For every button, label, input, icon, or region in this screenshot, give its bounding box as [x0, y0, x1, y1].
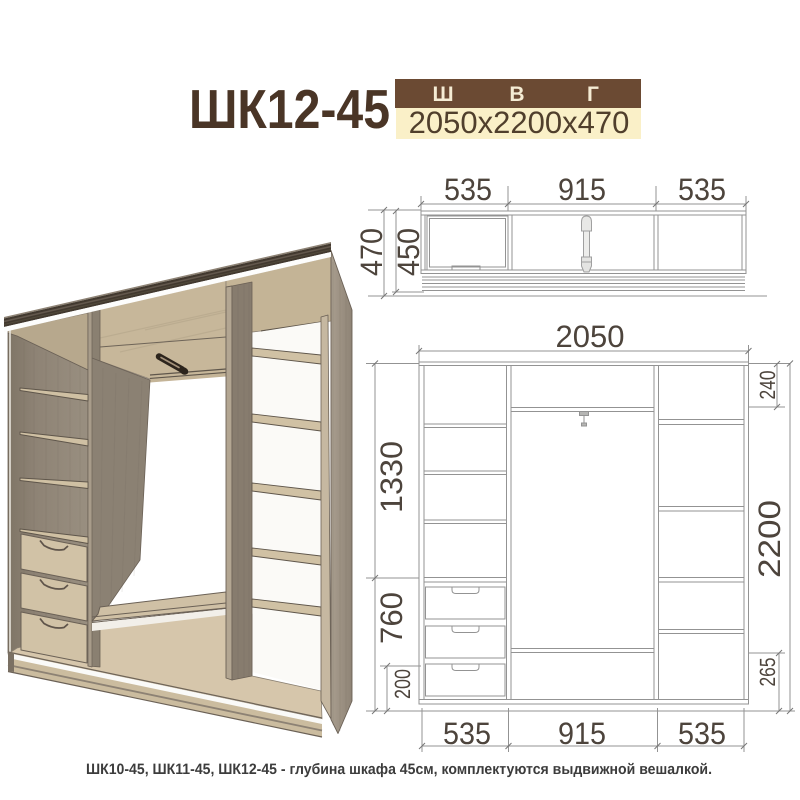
svg-text:470: 470 — [354, 228, 389, 276]
svg-text:200: 200 — [390, 669, 415, 699]
svg-text:Г: Г — [587, 83, 599, 106]
svg-text:2050x2200x470: 2050x2200x470 — [409, 105, 630, 140]
svg-text:ШК12-45: ШК12-45 — [189, 78, 390, 140]
svg-text:1330: 1330 — [374, 441, 409, 513]
svg-text:535: 535 — [443, 716, 491, 751]
svg-text:760: 760 — [374, 592, 409, 644]
svg-text:535: 535 — [678, 716, 726, 751]
svg-text:450: 450 — [391, 228, 426, 276]
svg-text:240: 240 — [755, 371, 780, 400]
svg-text:915: 915 — [558, 716, 606, 751]
svg-text:535: 535 — [444, 172, 492, 207]
svg-text:265: 265 — [755, 658, 780, 687]
svg-text:535: 535 — [678, 172, 726, 207]
svg-text:В: В — [509, 83, 524, 106]
svg-text:ШК10-45, ШК11-45, ШК12-45 - гл: ШК10-45, ШК11-45, ШК12-45 - глубина шкаф… — [86, 761, 712, 778]
svg-text:2200: 2200 — [752, 500, 787, 578]
svg-text:Ш: Ш — [432, 83, 453, 106]
svg-text:2050: 2050 — [556, 319, 625, 354]
svg-text:915: 915 — [558, 172, 606, 207]
